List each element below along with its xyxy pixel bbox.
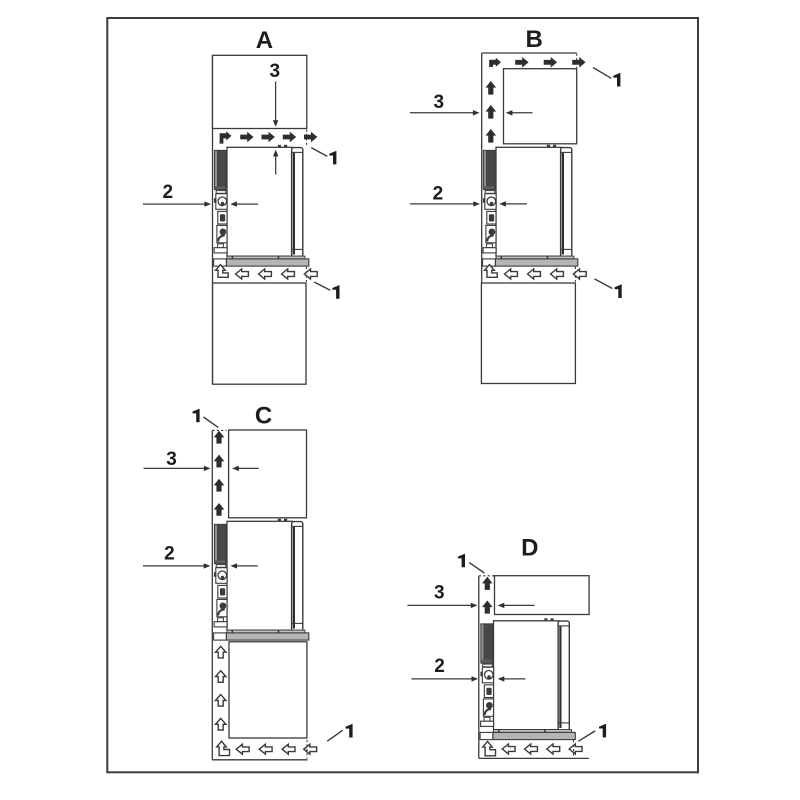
svg-text:3: 3 [434,92,445,113]
svg-text:B: B [526,26,543,53]
svg-text:2: 2 [433,184,444,205]
svg-text:3: 3 [270,61,281,82]
svg-text:3: 3 [434,583,445,604]
svg-text:D: D [521,534,538,561]
svg-text:2: 2 [163,182,174,203]
svg-text:C: C [255,402,272,429]
svg-text:2: 2 [434,656,445,677]
svg-text:A: A [256,27,273,54]
svg-text:2: 2 [164,544,175,565]
svg-text:3: 3 [166,449,177,470]
